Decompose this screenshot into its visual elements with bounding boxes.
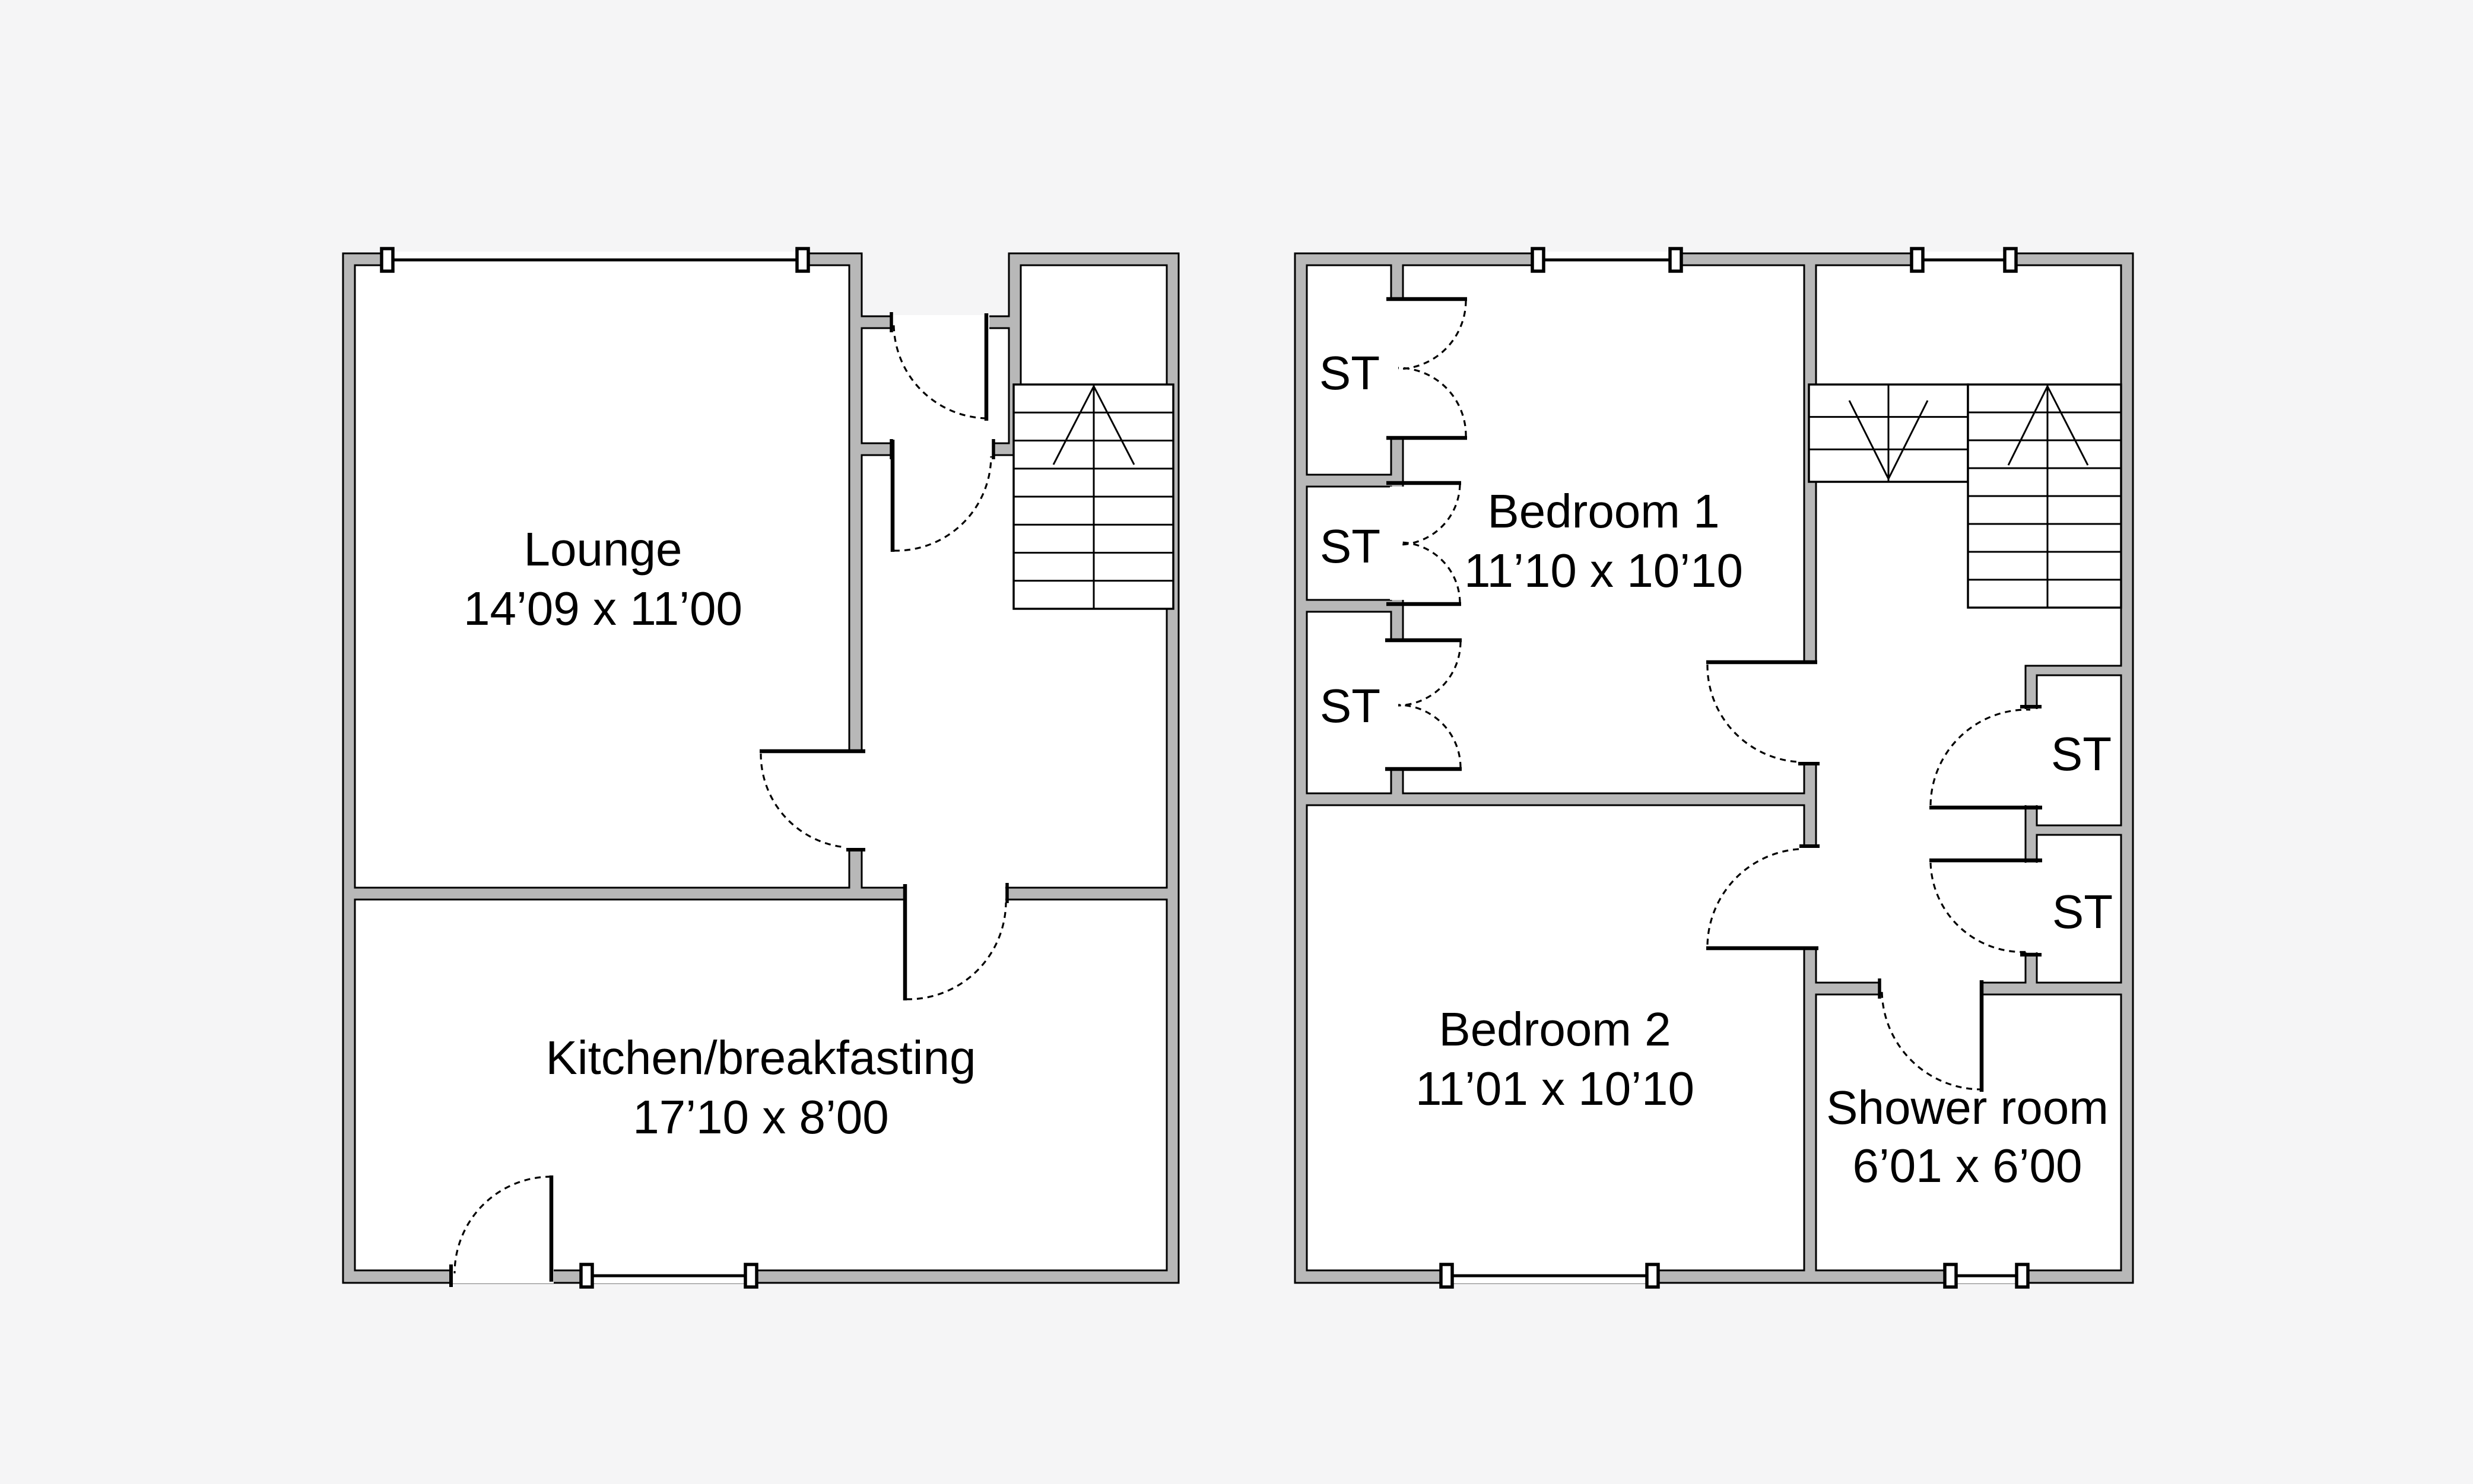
svg-text:Kitchen/breakfasting: Kitchen/breakfasting <box>546 1031 976 1084</box>
svg-text:Bedroom 1: Bedroom 1 <box>1487 485 1719 538</box>
svg-text:ST: ST <box>1320 520 1380 573</box>
svg-text:Bedroom 2: Bedroom 2 <box>1439 1003 1671 1056</box>
svg-text:ST: ST <box>2052 885 2113 938</box>
svg-text:6’01 x 6’00: 6’01 x 6’00 <box>1853 1139 2082 1192</box>
svg-text:14’09 x 11’00: 14’09 x 11’00 <box>464 582 742 635</box>
svg-text:11’10 x 10’10: 11’10 x 10’10 <box>1464 544 1743 597</box>
svg-text:ST: ST <box>1319 347 1380 399</box>
svg-text:Shower room: Shower room <box>1826 1081 2109 1134</box>
svg-text:11’01 x 10’10: 11’01 x 10’10 <box>1415 1062 1694 1115</box>
svg-text:17’10 x 8’00: 17’10 x 8’00 <box>633 1091 888 1143</box>
svg-text:ST: ST <box>2051 727 2112 780</box>
svg-text:ST: ST <box>1320 679 1380 732</box>
svg-text:Lounge: Lounge <box>524 523 682 576</box>
